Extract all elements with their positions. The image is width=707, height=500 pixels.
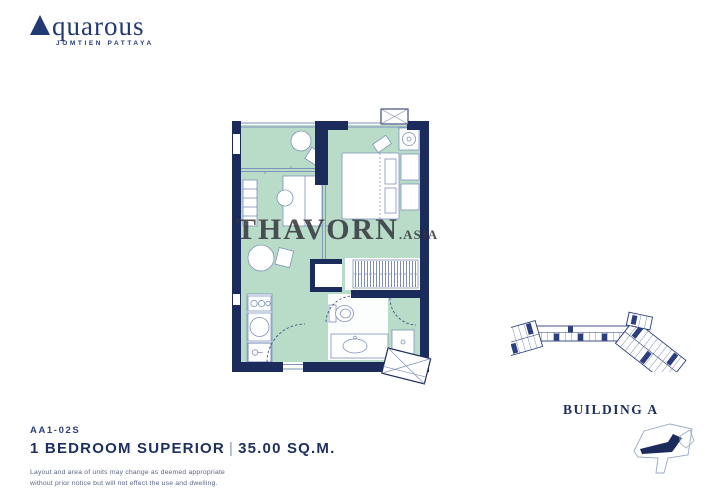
watermark: THAVORN.ASIA <box>236 213 438 247</box>
building-label: BUILDING A <box>563 402 703 418</box>
brand-name: quarous <box>52 14 144 38</box>
brochure-page: quarous JOMTIEN PATTAYA <box>0 0 707 500</box>
brand-logo: quarous JOMTIEN PATTAYA <box>30 14 154 47</box>
brand-logo-row: quarous <box>30 14 154 38</box>
ac-unit-top <box>381 109 408 124</box>
disclaimer: Layout and area of units may change as d… <box>30 468 225 489</box>
unit-floor-plan <box>225 108 440 386</box>
unit-title-separator: | <box>225 440 238 457</box>
toilet <box>329 305 354 322</box>
other-building-outline <box>680 430 694 448</box>
triangle-a-logo-icon <box>30 15 50 35</box>
disclaimer-line-2: without prior notice but will not effect… <box>30 479 225 490</box>
watermark-main: THAVORN <box>236 213 399 246</box>
building-a-highlight <box>640 434 682 454</box>
unit-area: 35.00 SQ.M. <box>238 440 335 457</box>
vanity-basin <box>331 334 388 358</box>
watermark-suffix: .ASIA <box>399 227 438 242</box>
unit-type: 1 BEDROOM SUPERIOR <box>30 440 225 457</box>
water-heater <box>399 128 419 150</box>
site-key-plan <box>628 421 698 481</box>
unit-title: 1 BEDROOM SUPERIOR|35.00 SQ.M. <box>30 440 336 457</box>
bed <box>342 153 399 219</box>
disclaimer-line-1: Layout and area of units may change as d… <box>30 468 225 479</box>
building-a-plan <box>511 288 703 372</box>
wardrobe <box>353 260 418 288</box>
brand-tagline: JOMTIEN PATTAYA <box>56 40 154 47</box>
unit-code: AA1-02S <box>30 425 80 436</box>
